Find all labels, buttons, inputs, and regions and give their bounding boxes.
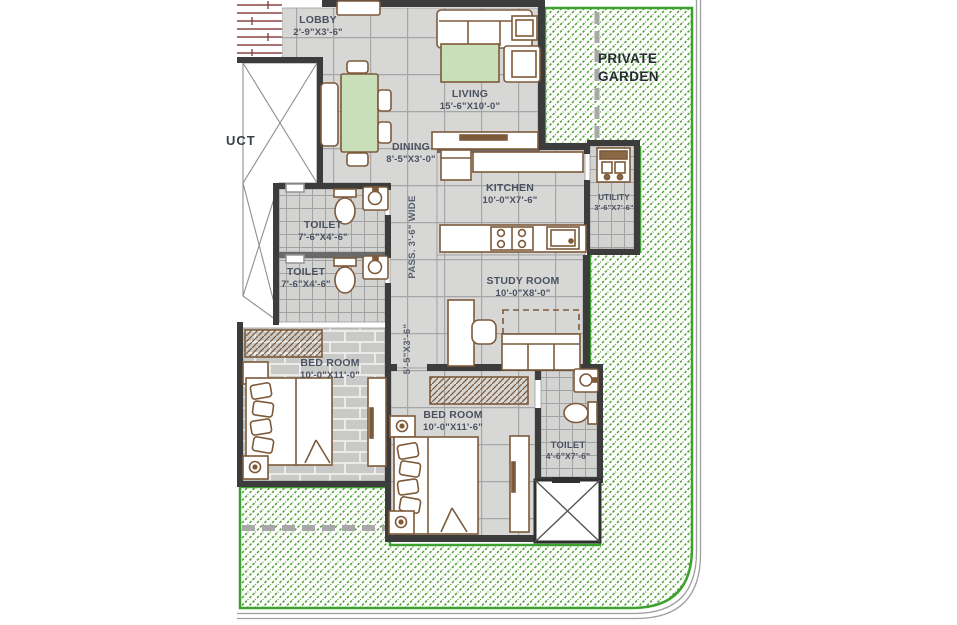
toilet2-basin [363, 256, 388, 279]
wall-bedroom1-left [237, 322, 243, 487]
toilet2-wc [334, 258, 356, 293]
wall-bedroom2-bottom [385, 535, 535, 542]
bedroom2-wardrobe [430, 377, 528, 404]
wall-kitchen-top-exterior [538, 143, 590, 150]
living-armchair [504, 46, 540, 82]
bedroom2-nightstand-bottom [389, 511, 414, 534]
living-side-table [512, 16, 537, 40]
dining-chair-bottom [347, 153, 368, 166]
kitchen-counter-top [473, 152, 583, 172]
bedroom1-nightstand-bottom [243, 456, 268, 479]
toilet2-door [286, 255, 304, 263]
bedroom1-bed [246, 378, 332, 465]
entrance-door [337, 1, 380, 15]
toilet1-basin [363, 187, 388, 210]
wall-toilets-left [273, 183, 279, 325]
wall-duct-top [237, 57, 323, 63]
wall-bedroom1-bottom [237, 481, 391, 487]
living-rug [441, 44, 499, 82]
wall-utility-bottom [587, 249, 640, 255]
toilet1-wc [334, 189, 356, 224]
tv-unit [432, 132, 538, 149]
floor-plan-canvas: LOBBY 2'-9"X3'-6" LIVING 15'-6"X10'-0" D… [0, 0, 957, 625]
study-chair [472, 320, 496, 344]
toilet1-door [286, 184, 304, 192]
wall-utility-right [634, 140, 640, 255]
kitchen-sink [547, 227, 579, 249]
bedroom1-dresser [368, 378, 386, 466]
shaft-box [535, 477, 600, 542]
dining-chair-top [347, 61, 368, 73]
study-sofa [502, 334, 580, 370]
dining-chair-right-1 [378, 90, 391, 111]
bedroom2-dresser [510, 436, 529, 532]
toilet3-basin [574, 369, 598, 392]
dining-bench [321, 83, 338, 146]
dining-table [341, 74, 378, 152]
wall-mid-left-stub [390, 364, 397, 371]
wall-utility-top [587, 140, 640, 146]
study-desk [448, 300, 474, 366]
floor-plan-drawing [0, 0, 957, 625]
kitchen-cooktop [491, 227, 533, 250]
bedroom1-wardrobe [245, 330, 322, 357]
wall-utility-left-a [584, 146, 590, 154]
kitchen-fridge [441, 150, 471, 180]
wall-toilets-right-b [385, 215, 391, 258]
washing-machine [597, 148, 630, 182]
wall-toilets-right-c [385, 283, 391, 322]
bedroom2-nightstand-top [390, 416, 415, 437]
wall-study-right [583, 255, 590, 368]
wall-toilet3-left-b [535, 408, 541, 483]
staircase [237, 0, 282, 56]
toilet3-wc [564, 402, 597, 424]
dining-chair-right-2 [378, 122, 391, 143]
